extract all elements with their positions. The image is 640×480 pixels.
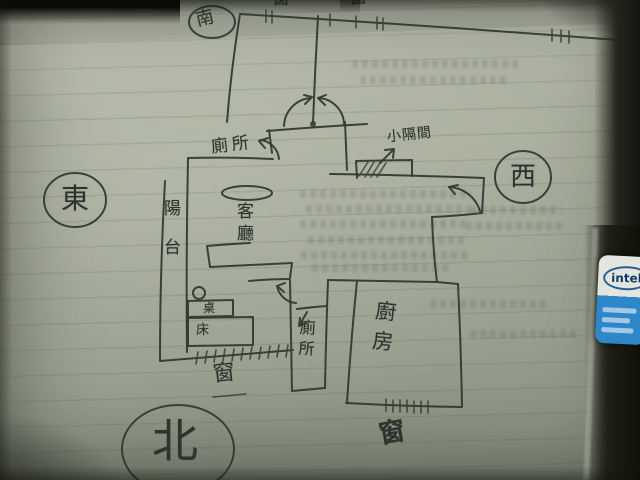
balcony-label: 陽台	[161, 199, 178, 277]
compass-west-label: 西	[510, 164, 536, 190]
floor-plan-drawing	[0, 0, 640, 480]
photo-shadow-bottom	[0, 466, 640, 480]
compass-east-label: 東	[61, 185, 89, 213]
desk-label: 桌	[203, 302, 215, 314]
table-oval	[222, 186, 272, 200]
stool-circle	[193, 287, 205, 299]
sticker-caption-bar	[602, 307, 636, 314]
sticker-caption-bar	[602, 317, 630, 323]
kitchen-label: 廚房	[369, 299, 396, 361]
arrowhead	[259, 138, 268, 148]
window-label-bottom-left: 窗	[212, 362, 236, 386]
lower-toilet-label: 廁所	[296, 319, 314, 362]
compass-circles	[44, 6, 551, 480]
upper-toilet-label: 廁所	[210, 135, 254, 157]
photo-shadow-left	[0, 0, 12, 480]
photo-shadow-top	[0, 0, 180, 24]
intel-logo: intel	[603, 266, 640, 291]
arrowhead	[449, 185, 458, 194]
intel-sticker: intel	[595, 255, 640, 345]
living-room-label: 客廳	[234, 202, 251, 246]
bed-label: 床	[196, 324, 209, 337]
window-label-bottom-right: 窗	[377, 418, 407, 448]
photo-of-hand-drawn-floor-plan: 南 東 西 北 廁所 小隔間 陽台 客廳 廁所 廚房 桌 床 窗 窗 窗 窗 i…	[0, 0, 640, 480]
compass-north-label: 北	[152, 418, 198, 464]
sticker-caption-bar	[601, 327, 633, 334]
photo-shadow-top	[160, 0, 360, 14]
